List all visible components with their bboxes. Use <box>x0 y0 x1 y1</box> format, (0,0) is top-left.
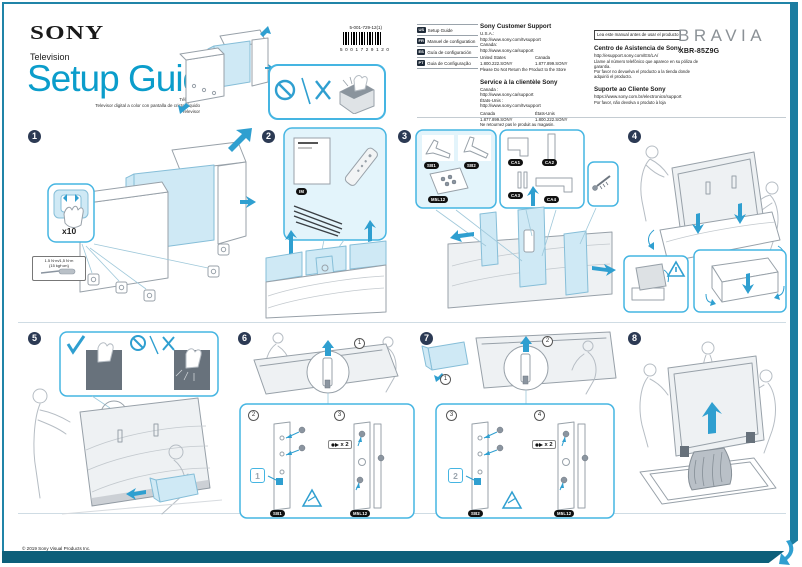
page-fold-corner <box>764 539 800 565</box>
person-figure-left <box>641 146 668 221</box>
stand-cover <box>688 448 731 490</box>
foam-block <box>422 342 468 370</box>
foam-right <box>564 231 588 295</box>
foam-left <box>480 212 498 266</box>
language-tag: ES <box>417 49 425 55</box>
language-tag: PT <box>417 60 425 66</box>
support-heading-pt: Suporte ao Cliente Sony <box>594 86 702 93</box>
step3-parts-illustration <box>396 126 620 320</box>
person-figure-left <box>33 389 70 498</box>
step8-standing-up-illustration <box>624 330 792 522</box>
header-divider <box>417 117 786 118</box>
copyright-notice: © 2019 Sony Visual Products Inc. <box>22 546 90 551</box>
quantity-value: x 2 <box>545 442 553 448</box>
read-first-box: Lea este manual antes de usar el product… <box>594 30 681 40</box>
stand-leg-detail <box>520 336 532 384</box>
support-line: Por favor no devuelva el producto a la t… <box>594 69 702 79</box>
language-label: Guia de Configuração <box>427 61 471 66</box>
step5-handling-illustration <box>22 330 234 522</box>
language-tag: US <box>417 27 426 33</box>
quantity-value: x 2 <box>341 442 349 448</box>
person-figure-left <box>640 364 668 447</box>
part-badge: SB1 <box>270 510 285 517</box>
page-border-left <box>2 2 4 563</box>
part-badge: CA3 <box>508 192 523 199</box>
page-border-top <box>2 2 798 4</box>
part-badge: CA4 <box>544 196 559 203</box>
crushed-box-illustration <box>340 76 374 114</box>
step-4: 4 <box>620 126 792 320</box>
detail-panel <box>240 404 414 518</box>
phone-number: 1.877.899.SONY <box>535 61 583 67</box>
step-3: 3 <box>396 126 620 320</box>
step-2: 2 <box>258 126 394 320</box>
substep-number: 2 <box>248 410 259 421</box>
slot-label: 2 <box>448 468 463 483</box>
language-label: Guía de configuración <box>427 50 471 55</box>
language-table: US Setup Guide FR Manuel de configuratio… <box>417 24 478 69</box>
barcode <box>343 32 383 45</box>
prohibition-icon <box>276 81 294 99</box>
step-5: 5 <box>22 330 234 522</box>
tip-warning-callout <box>624 256 688 312</box>
support-heading-fr: Service à la clientèle Sony <box>480 79 586 86</box>
slot-label: 1 <box>250 468 265 483</box>
screwdriver-icon <box>39 268 79 277</box>
quantity-tag: x 2 <box>532 440 556 449</box>
base-removal-callout <box>694 250 786 312</box>
manual-badge: IM <box>296 188 307 195</box>
carton-box <box>74 142 246 292</box>
row-divider <box>18 322 786 323</box>
substep-number: 3 <box>334 410 345 421</box>
support-url: http://www.sony.ca/support <box>480 48 586 54</box>
support-phones-en: United States Canada 1.800.222.SONY 1.87… <box>480 55 586 66</box>
step-1: 1 <box>22 126 258 320</box>
barcode-digits: 5001729120 <box>340 47 386 52</box>
substep-number: 3 <box>446 410 457 421</box>
model-number: XBR-85Z9G <box>679 48 719 55</box>
cross-icon <box>316 81 330 99</box>
page-border-bottom <box>2 551 798 563</box>
handling-warning-callout <box>268 64 386 120</box>
x10-label: x10 <box>62 226 76 236</box>
quantity-tag: x 2 <box>328 440 352 449</box>
substep-number: 1 <box>354 338 365 349</box>
substep-number: 1 <box>440 374 451 385</box>
setup-guide-page: { "header": { "brand": "SONY", "product_… <box>0 0 802 567</box>
detail-panel <box>436 404 614 518</box>
sony-logo: SONY <box>30 22 104 45</box>
language-row-es: ES Guía de configuración <box>417 47 478 58</box>
support-heading-en: Sony Customer Support <box>480 23 586 30</box>
stand-leg-detail <box>322 340 334 388</box>
tv-panel <box>668 356 764 457</box>
part-badge: M5L12 <box>554 510 574 517</box>
support-line: Llame al número telefónico que aparece e… <box>594 59 702 69</box>
step2-accessories-illustration <box>258 126 394 320</box>
support-url: http://www.sony.com/tvsupport <box>480 103 586 109</box>
step4-lifting-illustration <box>620 126 792 320</box>
support-column-en-fr: Sony Customer Support U.S.A.: http://www… <box>480 23 586 127</box>
step-6: 6 <box>236 330 418 522</box>
step1-unpacking-illustration <box>22 126 258 320</box>
language-row-fr: FR Manuel de configuration <box>417 36 478 47</box>
language-label: Manuel de configuration <box>427 39 475 44</box>
support-note: Please Do Not Return the Product to the … <box>480 67 586 72</box>
header-packaging-illustration <box>172 24 274 118</box>
step-7: 7 <box>418 330 622 522</box>
support-line: Por favor, não devolva o produto à loja <box>594 100 702 105</box>
step7-stand-install-illustration <box>418 330 622 522</box>
bravia-logo: BRAVIA <box>678 26 766 46</box>
step6-stand-install-illustration <box>236 330 418 522</box>
screw-arrow-icon <box>535 442 543 448</box>
part-badge: M5L12 <box>350 510 370 517</box>
substep-number: 2 <box>542 336 553 347</box>
slash-icon <box>302 78 310 104</box>
part-number: 5-001-729-12(1) <box>322 25 382 30</box>
part-badge: CA1 <box>508 159 523 166</box>
part-badge: CA2 <box>542 159 557 166</box>
substep-number: 4 <box>534 410 545 421</box>
step-8: 8 <box>624 330 792 522</box>
screws-callout <box>588 162 618 206</box>
torque-box: 1.5 N·m/1,5 N·m {15 kgf·cm} <box>32 256 86 281</box>
tv-stand-table <box>640 448 776 504</box>
part-badge: SB1 <box>424 162 439 169</box>
packaging-rear <box>448 207 612 308</box>
part-badge: M5L12 <box>428 196 448 203</box>
phone-number: 1.800.222.SONY <box>480 61 535 67</box>
grip-callout <box>60 332 218 396</box>
language-row-us: US Setup Guide <box>417 25 478 36</box>
cover-part-3 <box>518 172 521 188</box>
language-label: Setup Guide <box>428 28 453 33</box>
part-badge: SB2 <box>464 162 479 169</box>
part-badge: SB2 <box>468 510 483 517</box>
language-row-pt: PT Guia de Configuração <box>417 58 478 69</box>
screw-arrow-icon <box>331 442 339 448</box>
carton-boxes <box>180 30 268 103</box>
language-tag: FR <box>417 38 425 44</box>
